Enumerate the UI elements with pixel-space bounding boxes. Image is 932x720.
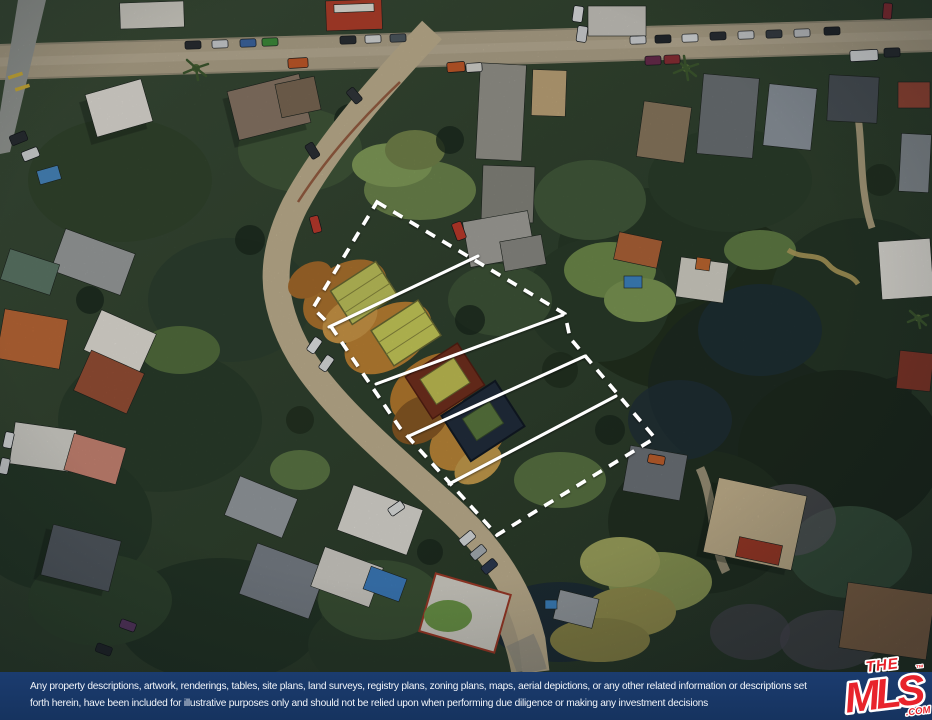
logo-dotcom: .COM (905, 704, 932, 718)
logo-trademark: ™ (915, 663, 924, 673)
disclaimer-bar: Any property descriptions, artwork, rend… (0, 672, 932, 720)
listing-photo-page: Any property descriptions, artwork, rend… (0, 0, 932, 720)
aerial-photo (0, 0, 932, 672)
disclaimer-text-line-1: Any property descriptions, artwork, rend… (30, 679, 932, 696)
themls-logo: THE MLS ™ .COM (832, 647, 932, 720)
vignette (0, 0, 932, 672)
disclaimer-text-line-2: forth herein, have been included for ill… (30, 696, 932, 713)
